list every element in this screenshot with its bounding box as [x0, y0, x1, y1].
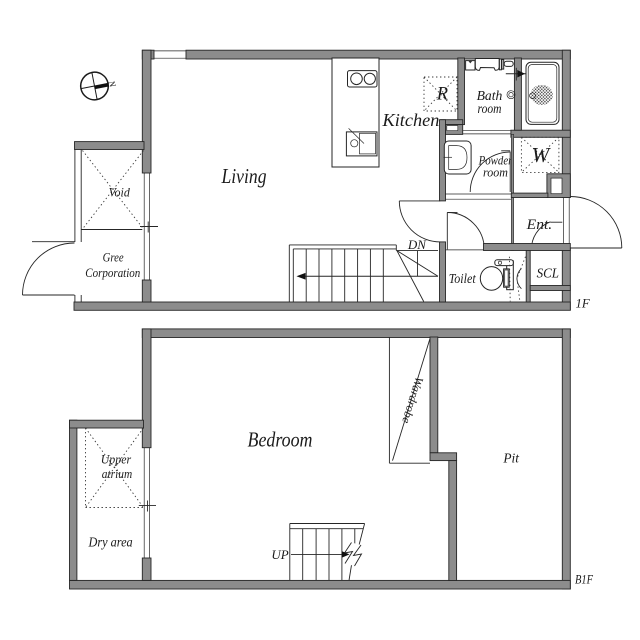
svg-text:W: W: [532, 143, 552, 167]
svg-text:SCL: SCL: [537, 266, 559, 281]
svg-text:R: R: [436, 84, 448, 104]
svg-text:Pit: Pit: [502, 452, 520, 467]
svg-text:Upper: Upper: [101, 452, 132, 467]
svg-text:Living: Living: [221, 164, 267, 188]
svg-text:room: room: [478, 101, 502, 116]
svg-text:DN: DN: [407, 237, 427, 252]
svg-text:B1F: B1F: [575, 573, 593, 587]
svg-text:Void: Void: [109, 186, 131, 200]
svg-text:UP: UP: [271, 547, 288, 562]
svg-text:1F: 1F: [576, 296, 591, 311]
svg-text:Gree: Gree: [103, 251, 124, 265]
svg-text:room: room: [483, 165, 508, 180]
svg-text:Dry area: Dry area: [88, 536, 133, 551]
svg-text:Ent.: Ent.: [526, 217, 553, 233]
svg-text:Kitchen: Kitchen: [381, 110, 439, 130]
svg-text:Bedroom: Bedroom: [248, 428, 313, 452]
svg-text:atrium: atrium: [102, 466, 132, 481]
svg-text:Corporation: Corporation: [85, 266, 140, 280]
svg-text:Toilet: Toilet: [449, 271, 477, 286]
